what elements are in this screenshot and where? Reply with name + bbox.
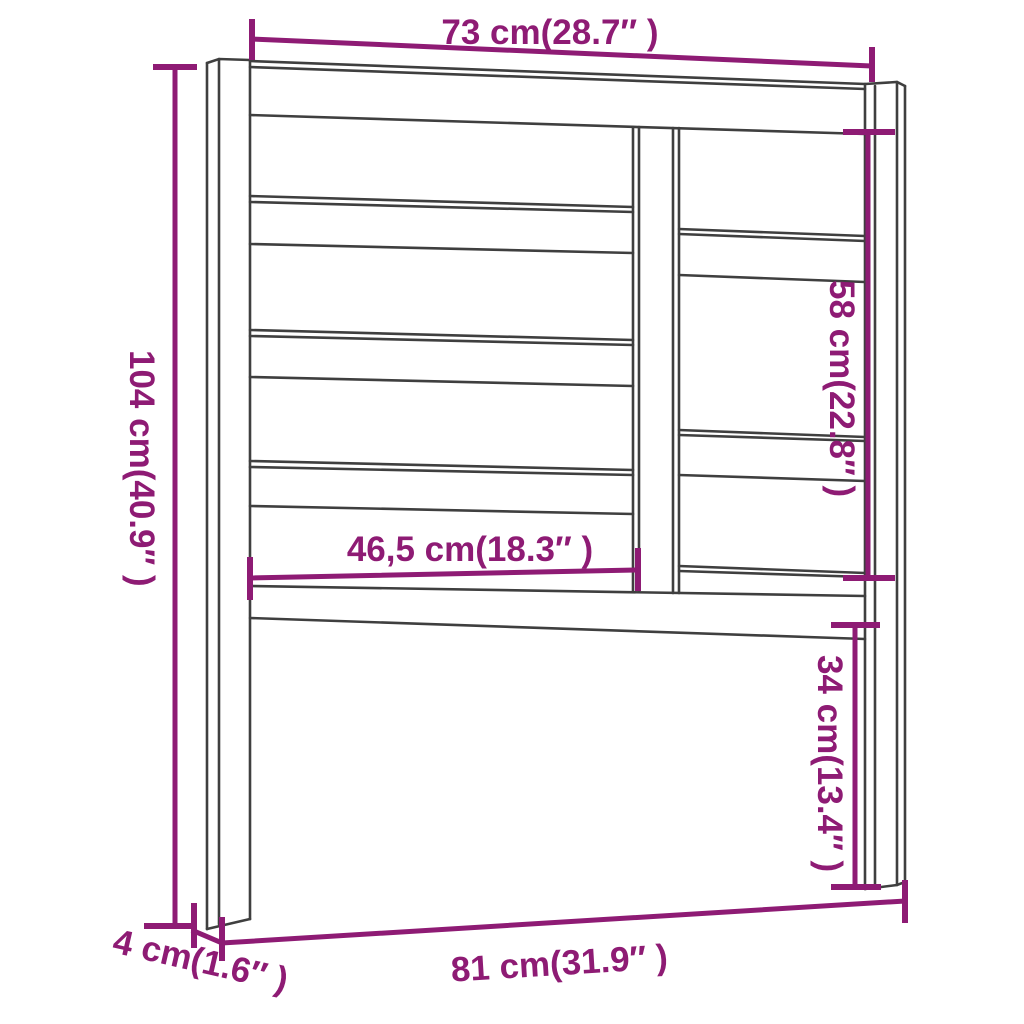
label-leg-lower-height: 34 cm(13.4″ ) [810,655,849,872]
lower-rail [250,586,865,639]
diagram-canvas: 73 cm(28.7″ ) 104 cm(40.9″ ) 58 cm(22.8″… [0,0,1024,1024]
dimension-labels: 73 cm(28.7″ ) 104 cm(40.9″ ) 58 cm(22.8″… [109,13,861,1000]
top-rail [250,61,865,134]
headboard-outline [207,59,905,929]
dimension-lines [147,22,905,958]
headboard-dimension-diagram: 73 cm(28.7″ ) 104 cm(40.9″ ) 58 cm(22.8″… [0,0,1024,1024]
label-overall-height: 104 cm(40.9″ ) [122,350,161,587]
right-leg [865,82,905,889]
left-slats [250,196,633,514]
label-top-width: 73 cm(28.7″ ) [441,13,658,52]
left-leg [207,59,250,929]
label-bottom-width: 81 cm(31.9″ ) [450,937,669,989]
middle-stile [633,127,679,593]
label-inner-width: 46,5 cm(18.3″ ) [347,530,593,569]
dimension-line-bottom-width [222,883,905,943]
label-panel-height: 58 cm(22.8″ ) [822,280,861,497]
